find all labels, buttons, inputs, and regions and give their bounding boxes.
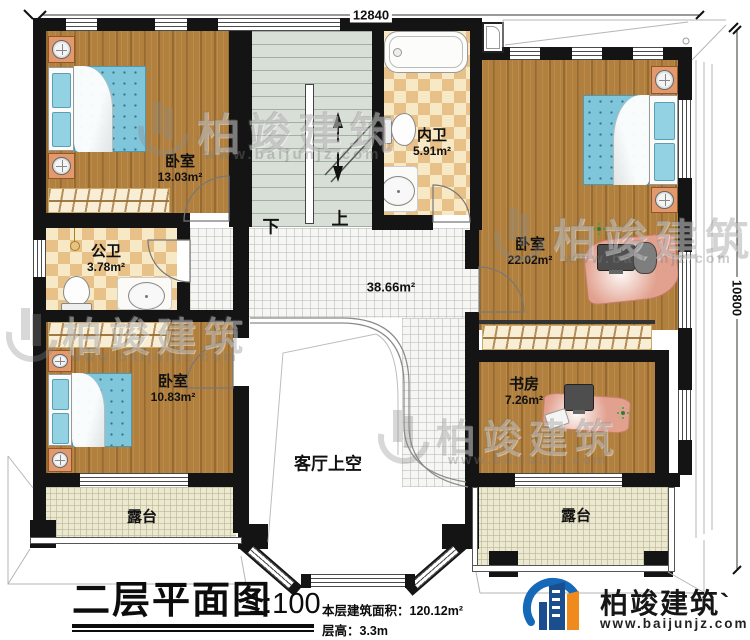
room-area: 5.91m²: [413, 145, 451, 158]
pillow: [52, 112, 71, 147]
window: [678, 390, 692, 440]
bed-headboard: [649, 95, 678, 185]
terrace-right-label: 露台: [561, 505, 591, 526]
wall-segment: [33, 310, 233, 322]
window: [66, 18, 97, 31]
window: [510, 47, 540, 60]
floor-height-line: 层高：3.3m: [322, 620, 388, 639]
wall-segment: [372, 18, 384, 230]
floor-area-line: 本层建筑面积：120.12m²: [322, 600, 463, 619]
room-name: 卧室: [508, 237, 553, 254]
plan-scale: 1:100: [248, 590, 321, 619]
window: [218, 18, 340, 31]
terrace-left-label: 露台: [127, 506, 157, 527]
window: [80, 473, 188, 487]
wall-segment: [465, 230, 479, 269]
wall-segment: [229, 18, 252, 227]
terrace-parapet: [472, 487, 478, 567]
lamp-icon: [655, 70, 674, 90]
stairs-up-label: 上: [332, 205, 349, 230]
room-area: 7.26m²: [505, 394, 543, 407]
room-area: 3.78m²: [87, 261, 125, 274]
wall-segment: [33, 213, 184, 228]
window: [412, 546, 459, 588]
lamp-icon: [655, 191, 674, 209]
lamp-icon: [52, 40, 71, 59]
plant-icon: [592, 222, 606, 236]
nightstand: [48, 36, 75, 63]
bed-headboard: [48, 374, 72, 446]
room-label-study: 书房 7.26m²: [505, 377, 543, 407]
void-label: 客厅上空: [294, 450, 362, 475]
bed-headboard: [48, 67, 74, 151]
logo-building-small: [539, 602, 547, 630]
pillow: [52, 413, 69, 444]
bathtub: [384, 31, 468, 73]
toilet: [63, 276, 90, 306]
skylight: [482, 22, 504, 53]
wardrobe: [48, 188, 170, 213]
chair: [633, 242, 657, 274]
lamp-icon: [52, 452, 68, 468]
title-underline-thin: [72, 630, 314, 632]
room-name: 内卫: [413, 128, 451, 145]
wall-segment: [655, 350, 669, 487]
room-label-inner-bath: 内卫 5.91m²: [413, 128, 451, 158]
brand-logo-icon: [512, 574, 596, 638]
lamp-pull-cord: [74, 228, 75, 242]
sink-counter: [117, 277, 172, 310]
brand-website: www.baijunjz.com: [600, 616, 749, 631]
window: [155, 18, 187, 31]
room-area: 22.02m²: [508, 254, 553, 267]
window: [678, 252, 692, 328]
room-name: 书房: [505, 377, 543, 394]
window: [633, 47, 663, 60]
room-area: 13.03m²: [158, 171, 203, 184]
nightstand: [48, 448, 72, 472]
nightstand: [651, 66, 678, 94]
floor-plan-canvas: 卧室 13.03m² 公卫 3.78m² 卧室 10.83m² 内卫 5.91m…: [0, 0, 750, 640]
dimension-top: 12840: [350, 8, 392, 23]
wall-segment: [470, 215, 482, 230]
lamp-pull: [70, 241, 80, 251]
room-label-bedroom-bl: 卧室 10.83m²: [151, 374, 196, 404]
room-name: 卧室: [158, 154, 203, 171]
window: [311, 574, 405, 588]
title-underline: [72, 624, 314, 628]
nightstand: [48, 153, 75, 179]
sink: [128, 282, 165, 310]
terrace-parapet: [30, 537, 242, 544]
void-inner-outline: [268, 334, 398, 542]
pillow: [654, 143, 675, 181]
plant-icon: [616, 406, 630, 420]
plan-title: 二层平面图: [72, 582, 272, 620]
window: [515, 473, 622, 487]
wall-segment: [177, 213, 190, 240]
dimension-right: 10800: [730, 277, 745, 319]
window: [678, 100, 692, 178]
wall-segment: [233, 386, 249, 533]
room-area: 10.83m²: [151, 391, 196, 404]
nightstand: [48, 350, 72, 372]
pillow: [52, 73, 71, 108]
lamp-icon: [52, 354, 68, 368]
wardrobe: [48, 322, 168, 348]
wall-segment: [177, 282, 190, 310]
lamp-icon: [52, 157, 71, 175]
terrace-parapet: [472, 565, 675, 572]
hall-area-label: 38.66m²: [367, 280, 415, 295]
wall-segment: [470, 18, 482, 230]
wall-segment: [479, 320, 655, 324]
room-label-bedroom-r: 卧室 22.02m²: [508, 237, 553, 267]
window: [572, 47, 602, 60]
nightstand: [651, 187, 678, 213]
sink: [381, 176, 415, 206]
stair-rail: [305, 84, 314, 224]
terrace-parapet: [668, 487, 675, 572]
room-label-public-bath: 公卫 3.78m²: [87, 244, 125, 274]
wall-segment: [479, 350, 655, 362]
stairs-down-label: 下: [263, 213, 280, 238]
pillow: [52, 379, 69, 410]
logo-building-orange: [567, 591, 579, 630]
wall-segment: [465, 312, 479, 352]
pillow: [654, 102, 675, 140]
wardrobe: [482, 325, 652, 350]
wall-segment: [233, 213, 249, 338]
computer-monitor: [597, 244, 635, 271]
wall-segment: [372, 215, 433, 230]
room-name: 公卫: [87, 244, 125, 261]
room-label-bedroom-tl: 卧室 13.03m²: [158, 154, 203, 184]
wall-segment: [33, 18, 46, 537]
window: [33, 240, 46, 277]
computer-monitor: [564, 384, 594, 411]
room-name: 卧室: [151, 374, 196, 391]
